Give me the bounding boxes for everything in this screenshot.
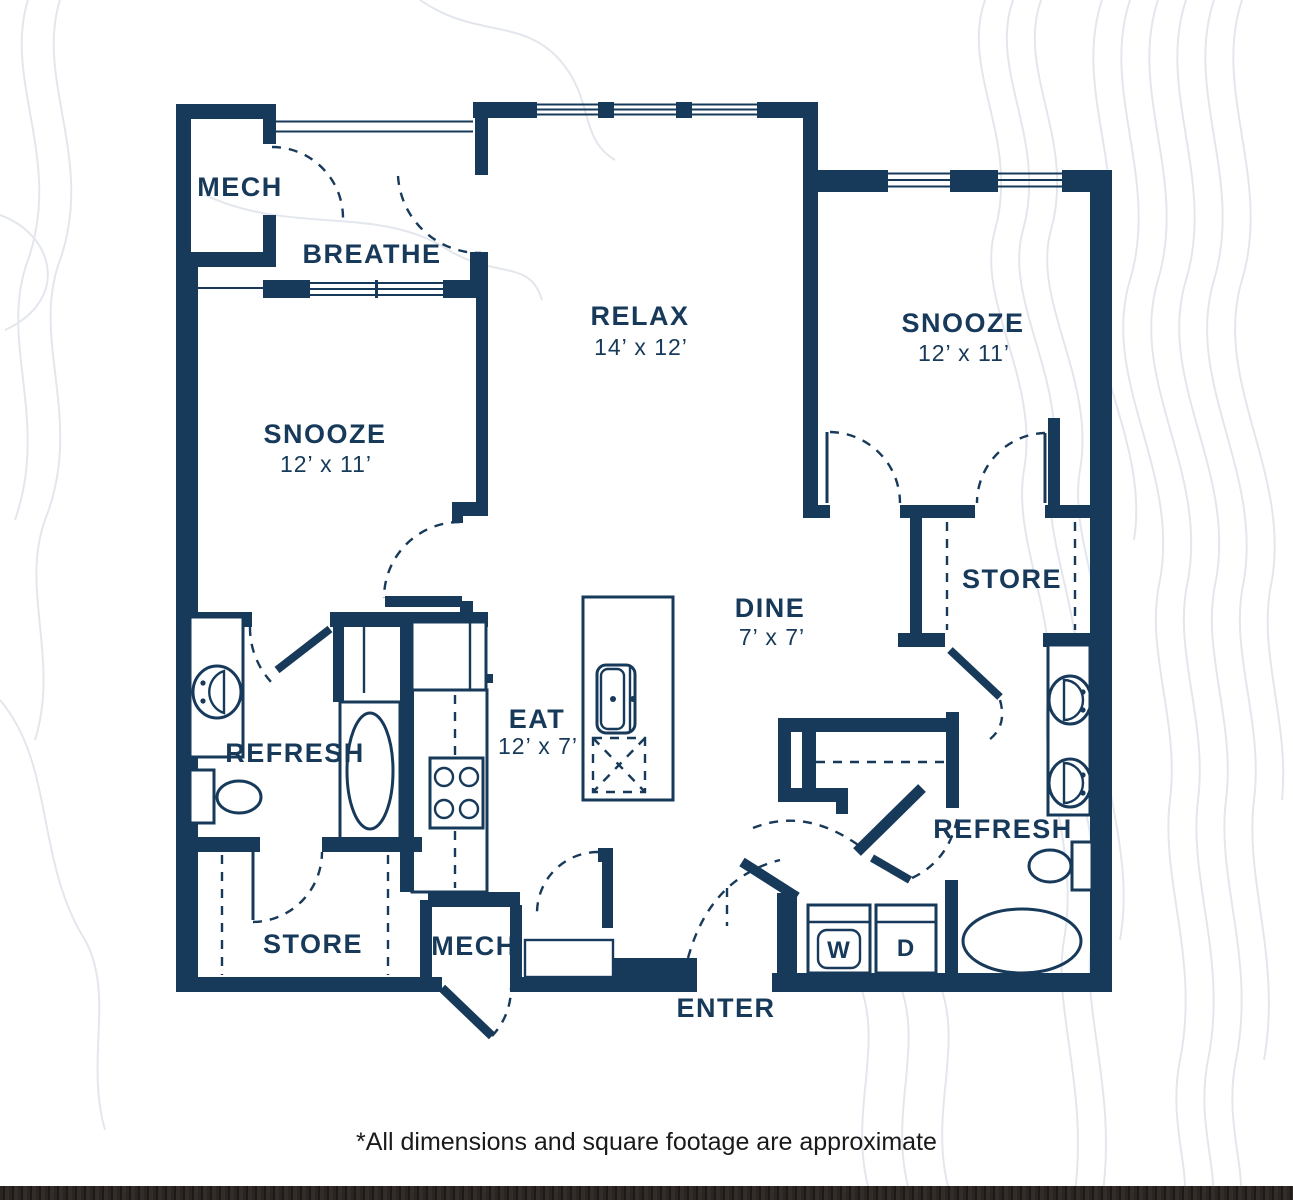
entry-bench bbox=[525, 940, 613, 977]
door-leaf-vanity-right bbox=[950, 650, 1000, 697]
door-swing-snooze-left bbox=[384, 522, 460, 598]
room-label-dine: DINE bbox=[735, 593, 806, 623]
room-label-eat: EAT bbox=[509, 704, 566, 734]
room-label-relax: RELAX bbox=[590, 301, 689, 331]
room-label-enter: ENTER bbox=[676, 993, 775, 1023]
room-dims-dine: 7’ x 7’ bbox=[739, 624, 805, 650]
fridge-icon bbox=[412, 622, 493, 690]
door-swing-refresh-left bbox=[250, 627, 273, 684]
door-leaf-refresh-right bbox=[872, 858, 910, 880]
room-dims-snooze-right: 12’ x 11’ bbox=[918, 340, 1010, 366]
room-dims-relax: 14’ x 12’ bbox=[594, 334, 688, 360]
door-swings bbox=[250, 147, 1045, 1036]
door-swing-vanity-right bbox=[986, 700, 1002, 742]
footer-bar bbox=[0, 1186, 1293, 1200]
door-swing-snooze-right-store bbox=[977, 433, 1045, 503]
door-swing-snooze-right-hall bbox=[830, 432, 900, 503]
room-dims-eat: 12’ x 7’ bbox=[498, 733, 578, 759]
bathtub-icon bbox=[340, 702, 400, 840]
stove-icon bbox=[430, 758, 483, 828]
dryer-label: D bbox=[897, 935, 915, 962]
toilet-icon bbox=[1029, 842, 1092, 890]
room-label-refresh-right: REFRESH bbox=[933, 814, 1073, 844]
island-sink-icon bbox=[597, 665, 636, 733]
walls bbox=[176, 102, 1112, 992]
dishwasher-icon bbox=[593, 738, 645, 792]
floorplan-page: MECH BREATHE RELAX 14’ x 12’ SNOOZE 12’ … bbox=[0, 0, 1293, 1200]
room-dims-snooze-left: 12’ x 11’ bbox=[280, 451, 372, 477]
room-label-store-right: STORE bbox=[962, 564, 1062, 594]
room-label-breathe: BREATHE bbox=[302, 239, 441, 269]
door-swing-hall bbox=[753, 821, 865, 850]
door-swing-store-left bbox=[253, 852, 322, 922]
room-label-refresh-left: REFRESH bbox=[225, 738, 365, 768]
toilet-icon bbox=[190, 770, 261, 823]
room-label-mech-bottom: MECH bbox=[431, 931, 517, 961]
vanity-right bbox=[1048, 645, 1090, 815]
room-label-store-left: STORE bbox=[263, 929, 363, 959]
door-leaf-refresh-left bbox=[277, 629, 330, 670]
door-swing-mech-bottom bbox=[492, 988, 511, 1036]
floorplan-canvas: MECH BREATHE RELAX 14’ x 12’ SNOOZE 12’ … bbox=[0, 0, 1293, 1200]
door-leaf-mech-bottom bbox=[442, 988, 492, 1036]
room-label-mech-top: MECH bbox=[197, 172, 283, 202]
footnote-text: *All dimensions and square footage are a… bbox=[0, 1128, 1293, 1157]
room-label-snooze-left: SNOOZE bbox=[263, 419, 386, 449]
washer-label: W bbox=[827, 937, 851, 964]
vanity-left bbox=[190, 617, 243, 757]
room-label-snooze-right: SNOOZE bbox=[901, 308, 1024, 338]
door-swing-hall-nook bbox=[537, 852, 598, 913]
